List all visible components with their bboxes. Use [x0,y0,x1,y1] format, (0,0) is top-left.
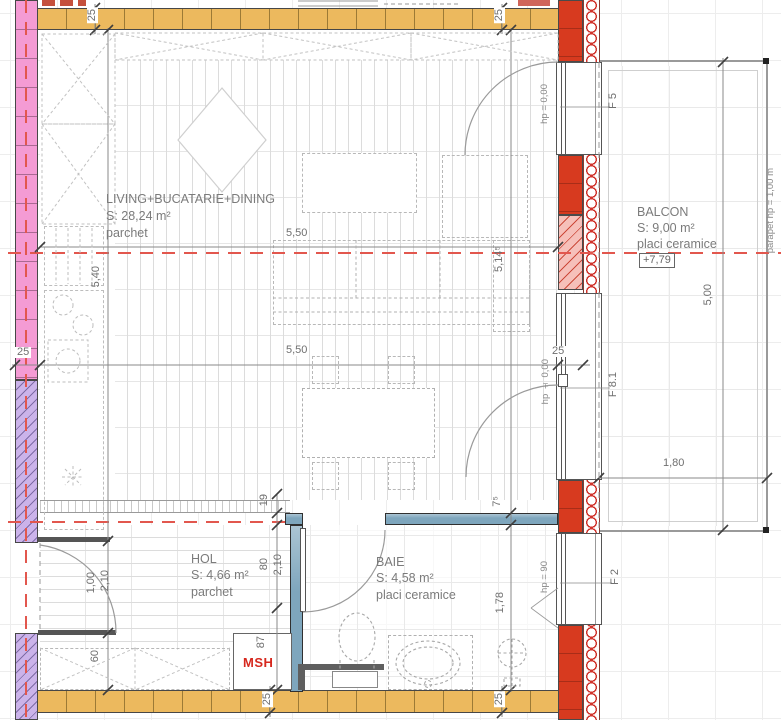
dim-87: 87 [256,636,267,648]
dim-25-left: 25 [15,347,31,358]
dim-178: 1,78 [495,592,506,613]
wc-tank [332,671,378,688]
window-f2 [556,533,602,625]
baie-floor-label: placi ceramice [376,589,456,602]
dining-chair-4 [388,462,415,490]
shower-enclosure-top [298,664,384,670]
dim-550-top: 5,50 [284,228,309,239]
hol-area: S: 4,66 m² [191,569,249,582]
dim-5145: 5,14⁵ [494,246,505,272]
balcon-label: BALCON [637,206,688,219]
dim-100: 1,00 [86,572,97,593]
dim-19: 19 [259,494,270,506]
balcon-area: S: 9,00 m² [637,222,695,235]
window-f2-tag: F 2 [610,569,621,585]
dim-25-top-2: 25 [494,7,505,23]
window-f2-outer [595,534,596,624]
dim-210-bath: 2,10 [273,554,284,575]
window-f81-tag: F 8.1 [608,372,619,397]
hol-floor-label: parchet [191,586,233,599]
top-left-detail [42,0,550,6]
window-f5-glazing2 [565,63,566,154]
dim-25-right-mid: 25 [550,346,566,357]
window-f81-outer [595,294,596,479]
dim-540: 5,40 [91,266,102,287]
axis-line-horizontal-lower [8,521,290,523]
hol-wardrobe [40,648,230,690]
dim-210-entrance: 2,10 [100,570,111,591]
window-f5-outer [595,63,596,154]
living-top-band [40,30,558,60]
floor-plan: LIVING+BUCATARIE+DINING S: 28,24 m² parc… [0,0,781,720]
entrance-jamb-top [38,537,110,542]
dim-80: 80 [259,558,270,570]
dim-25-top-1: 25 [87,7,98,23]
window-f5-glazing [561,63,562,154]
dim-60: 60 [90,650,101,662]
window-f81 [556,293,602,480]
bath-door-leaf [300,528,306,612]
entrance-door-leaf [38,630,116,635]
dim-25-bottom-1: 25 [262,691,273,707]
window-f5-tag: F 5 [608,93,619,109]
top-strip-detail [298,1,460,6]
wall-right-red-4 [558,625,583,720]
living-area: S: 28,24 m² [106,210,171,223]
baie-area: S: 4,58 m² [376,572,434,585]
wall-right-red-3 [558,480,583,533]
wall-bath-north-right [385,513,558,525]
window-f5 [556,62,602,155]
parapet-note: parapet hp = 1,00 m [766,168,776,253]
dining-chair-3 [312,462,339,490]
dim-75: 7⁵ [492,496,503,507]
baie-label: BAIE [376,556,405,569]
window-f81-mullion [558,374,568,387]
balcon-floor-label: placi ceramice [637,238,717,251]
dining-chair-1 [312,356,339,384]
balcony-parapet-inner [608,70,758,522]
living-floor-label: parchet [106,227,148,240]
baie-counter [388,635,473,690]
window-f2-glazing2 [565,534,566,624]
hp-f81: hp ± 0,00 [541,359,551,404]
kitchen-counter [44,290,104,530]
living-label: LIVING+BUCATARIE+DINING [106,193,275,206]
dim-180: 1,80 [661,458,686,469]
hp-f2: hp = 90 [540,561,550,593]
balcony-corner-ne [763,58,769,64]
wall-bath-north-left [285,513,303,525]
balcony-corner-se [763,527,769,533]
dim-25-bottom-2: 25 [494,691,505,707]
window-f2-glazing [561,534,562,624]
wall-bottom [37,690,560,713]
hol-label: HOL [191,553,217,566]
dim-550-mid: 5,50 [284,345,309,356]
wall-right-red-1 [558,0,583,62]
shower-enclosure-left [298,664,305,690]
balcon-level-badge: +7,79 [639,253,675,268]
dining-chair-2 [388,356,415,384]
kitchen-cabinet-2 [442,155,528,238]
kitchen-island [302,153,417,213]
wall-top [37,8,560,30]
dining-table [302,388,435,458]
msh-label: MSH [243,655,273,670]
hp-f5: hp = 0,00 [540,84,550,124]
dim-500: 5,00 [703,284,714,305]
axis-line-left-wall [25,0,27,718]
wall-right-red-2 [558,155,583,215]
